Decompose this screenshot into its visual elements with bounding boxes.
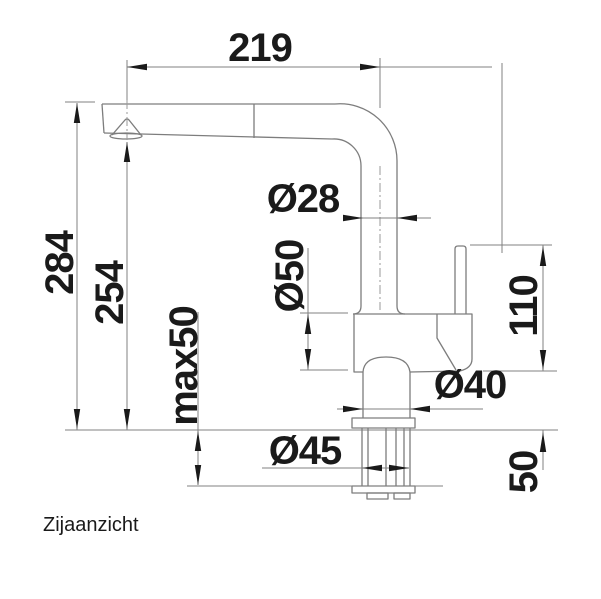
lever-rod [455, 246, 466, 314]
dim-base-diameter-label: Ø40 [434, 363, 507, 407]
dim-lever-height-arrow-bottom [540, 350, 546, 370]
dim-pipe-diameter: Ø28 [267, 177, 431, 221]
dim-outlet-height-arrow-top [124, 142, 130, 162]
dim-total-height-arrow-bottom [74, 409, 80, 429]
dim-shank-diameter-arrow-left [362, 465, 382, 471]
dim-body-diameter-arrow-top [305, 314, 311, 334]
faucet-side-view-diagram: 219 284 254 max50 Ø28 Ø50 [0, 0, 601, 599]
dim-pipe-diameter-arrow-left [343, 215, 363, 221]
pipe-inner-bend [332, 139, 361, 314]
deck-flange [352, 418, 415, 428]
dim-base-diameter-arrow-right [410, 406, 430, 412]
dim-under-counter: 50 [502, 430, 546, 493]
dim-max-thickness-arrow-bottom [195, 465, 201, 485]
dim-max-thickness: max50 [162, 306, 206, 485]
dim-body-diameter: Ø50 [268, 240, 348, 370]
dim-outlet-height-arrow-bottom [124, 409, 130, 429]
shank-foot-right [394, 493, 410, 499]
dim-total-height: 284 [38, 102, 95, 430]
dim-lever-height-arrow-top [540, 246, 546, 266]
dim-reach-arrow-right [360, 64, 380, 70]
fixing-nut [352, 486, 415, 493]
threaded-shank [362, 428, 410, 486]
dim-pipe-diameter-label: Ø28 [267, 177, 340, 221]
dim-shank-diameter-label: Ø45 [269, 429, 342, 473]
dim-lever-height: 110 [470, 245, 557, 371]
technical-drawing-page: 219 284 254 max50 Ø28 Ø50 [0, 0, 601, 599]
dim-reach-arrow-left [127, 64, 147, 70]
dim-shank-diameter: Ø45 [262, 429, 409, 473]
shank-foot-left [367, 493, 388, 499]
dim-under-counter-label: 50 [502, 451, 546, 494]
dim-pipe-diameter-arrow-right [397, 215, 417, 221]
dim-base-diameter-arrow-left [343, 406, 363, 412]
dim-total-height-arrow-top [74, 103, 80, 123]
pipe-outer-bend [335, 104, 405, 314]
dim-under-counter-arrow-top [540, 432, 546, 452]
dim-reach-label: 219 [228, 26, 292, 70]
dim-max-thickness-label: max50 [162, 306, 206, 426]
lever-joint-line [437, 314, 456, 370]
base-column [363, 372, 410, 418]
dim-total-height-label: 284 [38, 229, 82, 294]
dim-body-diameter-arrow-bottom [305, 349, 311, 369]
dim-outlet-height-label: 254 [88, 259, 132, 324]
dim-body-diameter-label: Ø50 [268, 240, 312, 313]
dim-shank-diameter-arrow-right [389, 465, 409, 471]
dim-outlet-height: 254 [88, 142, 132, 430]
view-caption: Zijaanzicht [43, 514, 139, 536]
dim-max-thickness-arrow-top [195, 431, 201, 451]
spout-nose-edge [102, 104, 104, 133]
dim-lever-height-label: 110 [502, 275, 546, 337]
